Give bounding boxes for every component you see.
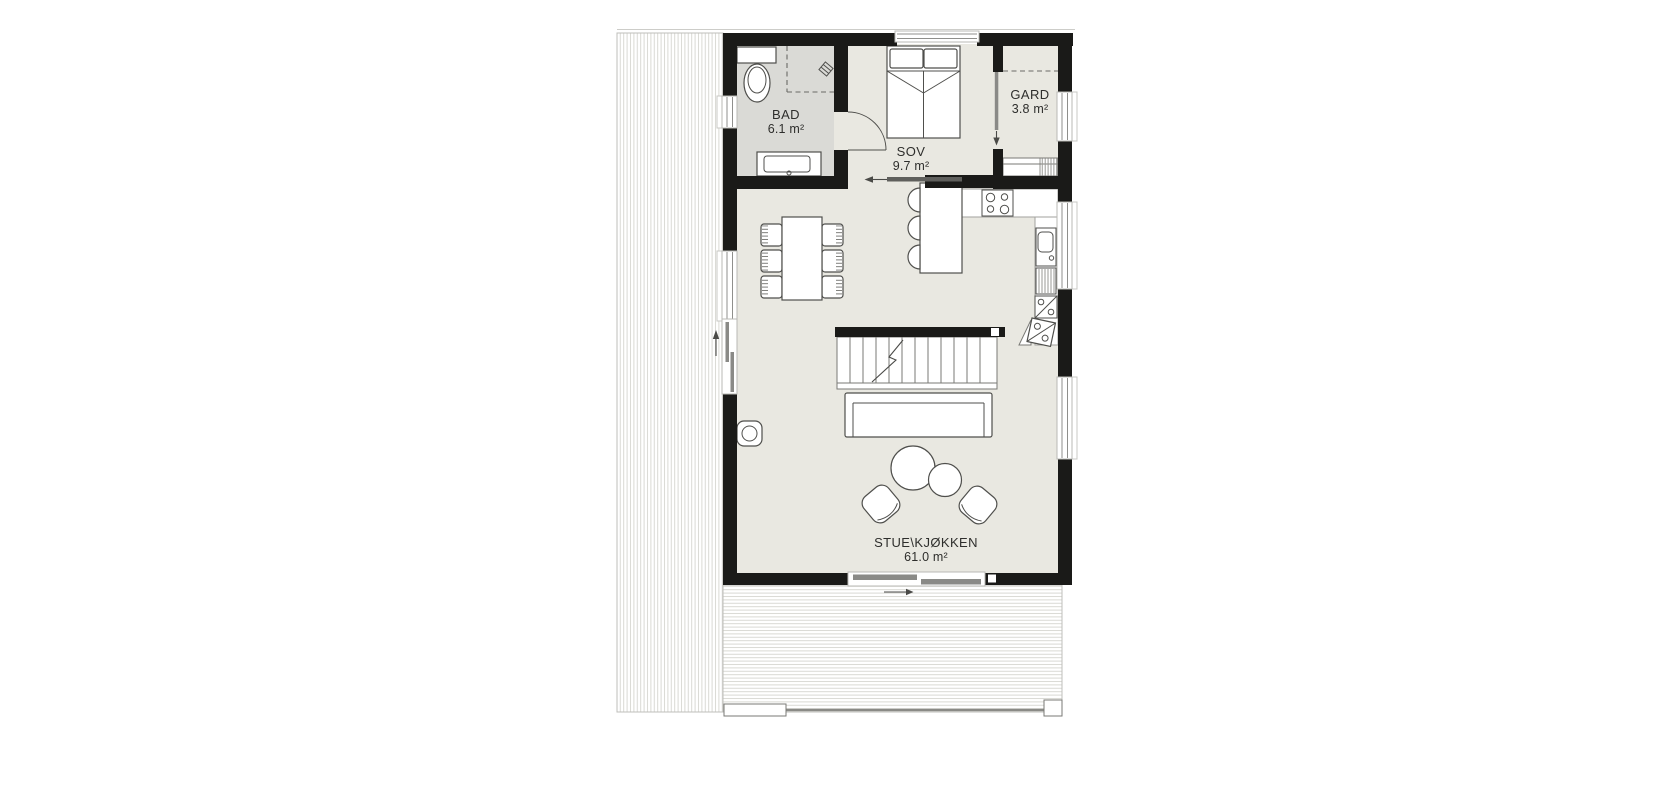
- window-right-living: [1057, 377, 1077, 459]
- dining-table: [782, 217, 822, 300]
- window-left-living: [717, 251, 737, 321]
- room-area-bad: 6.1 m²: [768, 122, 805, 136]
- roof-overhang-strip: [617, 33, 723, 712]
- deck-terrace: [723, 585, 1062, 716]
- door-jamb: [988, 575, 996, 583]
- stair-wall-post: [991, 328, 999, 336]
- floor-plan-drawing: BAD 6.1 m² SOV 9.7 m² GARD 3.8 m² STUE\K…: [0, 0, 1670, 800]
- sofa: [845, 393, 992, 437]
- stair-rail: [837, 383, 997, 389]
- wardrobe-cabinet: [1003, 158, 1058, 176]
- room-area-sov: 9.7 m²: [893, 159, 930, 173]
- room-area-stue: 61.0 m²: [904, 550, 948, 564]
- room-label-bad: BAD: [772, 107, 800, 122]
- dining-chair: [822, 224, 843, 246]
- dining-chair: [761, 224, 782, 246]
- dining-set: [761, 217, 843, 300]
- floor-plan-canvas: BAD 6.1 m² SOV 9.7 m² GARD 3.8 m² STUE\K…: [0, 0, 1670, 800]
- window-right-kitchen: [1057, 202, 1077, 289]
- kitchen-counter-top: [962, 189, 1058, 217]
- dining-chair: [761, 250, 782, 272]
- dining-chair: [822, 250, 843, 272]
- wood-stove: [737, 421, 762, 446]
- dining-chair: [822, 276, 843, 298]
- toilet-cistern: [737, 47, 776, 63]
- room-area-gard: 3.8 m²: [1012, 102, 1049, 116]
- double-bed: [887, 46, 960, 138]
- room-label-stue: STUE\KJØKKEN: [874, 535, 978, 550]
- dining-chair: [761, 276, 782, 298]
- window-top-bedroom: [895, 31, 979, 42]
- kitchen-island: [908, 183, 962, 273]
- deck-step: [724, 704, 786, 716]
- pillow: [924, 49, 957, 68]
- window-left-bathroom: [717, 96, 737, 128]
- coffee-table-small: [929, 464, 962, 497]
- room-label-sov: SOV: [897, 144, 926, 159]
- pillow: [890, 49, 923, 68]
- deck-corner-post: [1044, 700, 1062, 716]
- staircase: [837, 337, 997, 389]
- room-label-gard: GARD: [1010, 87, 1049, 102]
- window-right-gard: [1057, 92, 1077, 141]
